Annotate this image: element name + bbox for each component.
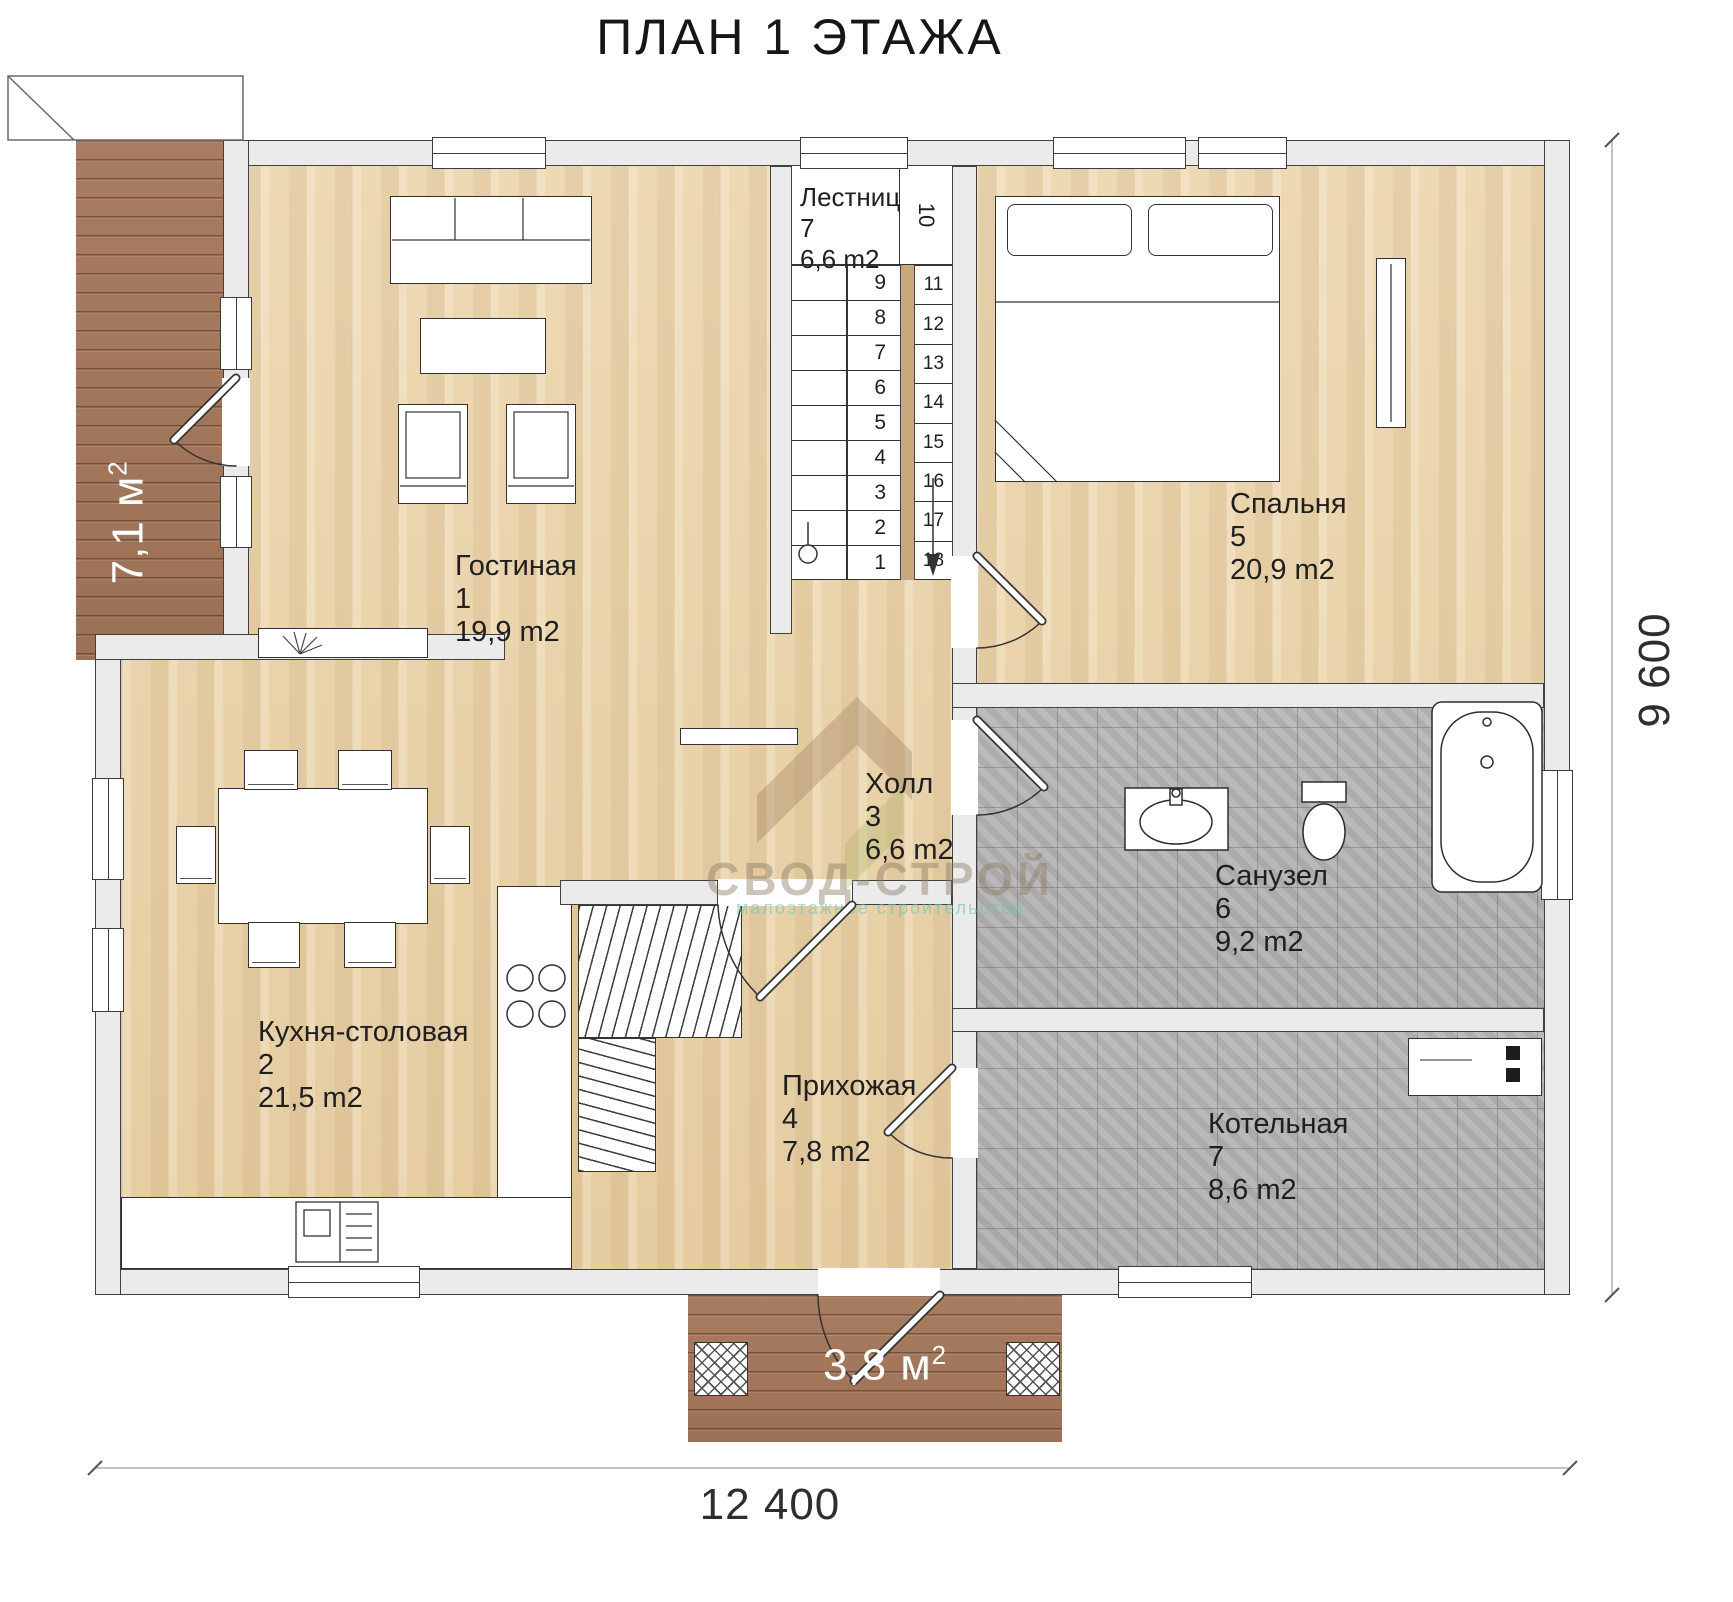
stairs-turn-step: 10	[913, 203, 939, 227]
stair-step: 15	[915, 423, 952, 462]
room-area: 19,9 m2	[455, 616, 577, 649]
room-label-kitchen: Кухня-столовая 2 21,5 m2	[258, 1016, 469, 1114]
terrace-area-value: 7,1 м	[103, 476, 152, 585]
door-opening	[222, 378, 250, 466]
dimension-height: 9 600	[1630, 540, 1680, 800]
floor-plan: ПЛАН 1 ЭТАЖА Лестница 7 6,6 m2 10 987654…	[0, 0, 1733, 1602]
room-area: 20,9 m2	[1230, 554, 1347, 587]
room-name: Прихожая	[782, 1070, 916, 1103]
entry-closet-left	[578, 1038, 656, 1172]
door-opening	[951, 1068, 978, 1158]
window	[432, 137, 546, 169]
stairs-label: Лестница 7 6,6 m2	[792, 166, 900, 265]
room-name: Кухня-столовая	[258, 1016, 469, 1049]
room-name: Гостиная	[455, 550, 577, 583]
room-number: 2	[258, 1049, 469, 1082]
roof-outline	[8, 76, 243, 140]
boiler-unit	[1408, 1038, 1542, 1096]
door-opening	[818, 1268, 940, 1296]
chair	[244, 750, 298, 790]
armchair	[506, 404, 576, 504]
window	[1541, 770, 1573, 900]
page-title: ПЛАН 1 ЭТАЖА	[596, 8, 1003, 66]
pillow	[1007, 204, 1132, 256]
kitchen-counter-bottom	[121, 1197, 572, 1269]
chair	[430, 826, 470, 884]
window	[92, 778, 124, 880]
door-opening	[951, 556, 978, 648]
armchair	[398, 404, 468, 504]
terrace-area-label: 7,1 м2	[103, 392, 154, 652]
room-number: 5	[1230, 521, 1347, 554]
dining-table	[218, 788, 428, 924]
window	[220, 297, 252, 370]
porch-area-sup: 2	[932, 1340, 947, 1370]
coffee-table	[420, 318, 546, 374]
stairs-stringer	[900, 265, 915, 580]
sideboard	[258, 628, 428, 658]
room-name: Спальня	[1230, 488, 1347, 521]
wall	[952, 683, 1544, 708]
window	[220, 476, 252, 548]
stair-step: 17	[915, 501, 952, 540]
stair-step: 13	[915, 344, 952, 383]
door-opening	[951, 720, 978, 815]
window	[1118, 1266, 1252, 1298]
watermark-subtitle: малоэтажное строительство	[736, 898, 1024, 919]
chair	[344, 922, 396, 968]
room-area: 6,6 m2	[865, 834, 954, 867]
terrace-area-sup: 2	[103, 460, 133, 475]
wall	[560, 880, 718, 905]
stair-step: 14	[915, 383, 952, 422]
room-label-hall: Холл 3 6,6 m2	[865, 768, 954, 866]
room-number: 4	[782, 1103, 916, 1136]
room-name: Холл	[865, 768, 954, 801]
stairs-name: Лестница	[800, 182, 899, 213]
porch-area-label: 3,8 м2	[755, 1340, 1015, 1391]
room-name: Санузел	[1215, 860, 1328, 893]
room-label-living: Гостиная 1 19,9 m2	[455, 550, 577, 648]
stairs-number: 7	[800, 213, 899, 244]
console-shelf	[680, 728, 798, 745]
stairs-turn-cell: 10	[900, 166, 952, 265]
stair-step: 18	[915, 541, 952, 580]
wall	[952, 1008, 1544, 1032]
room-area: 8,6 m2	[1208, 1174, 1348, 1207]
stair-step: 16	[915, 462, 952, 501]
dimension-width: 12 400	[640, 1480, 900, 1530]
chair	[176, 826, 216, 884]
bathroom-floor	[977, 708, 1544, 1008]
stair-step: 12	[915, 304, 952, 343]
room-number: 1	[455, 583, 577, 616]
window	[288, 1266, 420, 1298]
room-area: 9,2 m2	[1215, 926, 1328, 959]
room-area: 7,8 m2	[782, 1136, 916, 1169]
room-number: 7	[1208, 1141, 1348, 1174]
room-label-entry: Прихожая 4 7,8 m2	[782, 1070, 916, 1168]
room-label-bedroom: Спальня 5 20,9 m2	[1230, 488, 1347, 586]
porch-post	[694, 1342, 748, 1396]
window	[800, 137, 908, 169]
room-area: 21,5 m2	[258, 1082, 469, 1115]
stairs-inner-line	[846, 265, 848, 580]
room-name: Котельная	[1208, 1108, 1348, 1141]
chair	[338, 750, 392, 790]
window	[1053, 137, 1186, 169]
wall	[770, 166, 792, 634]
window	[92, 928, 124, 1012]
stair-step: 11	[915, 265, 952, 304]
stairs-right-flight: 1112131415161718	[915, 265, 952, 580]
room-label-boiler: Котельная 7 8,6 m2	[1208, 1108, 1348, 1206]
wardrobe	[1376, 258, 1406, 428]
room-label-bathroom: Санузел 6 9,2 m2	[1215, 860, 1328, 958]
room-number: 3	[865, 801, 954, 834]
chair	[248, 922, 300, 968]
sofa	[390, 196, 592, 284]
porch-area-value: 3,8 м	[823, 1341, 932, 1390]
room-number: 6	[1215, 893, 1328, 926]
pillow	[1148, 204, 1273, 256]
entry-closet-top	[578, 905, 742, 1038]
wall	[1544, 140, 1570, 1295]
window	[1198, 137, 1287, 169]
